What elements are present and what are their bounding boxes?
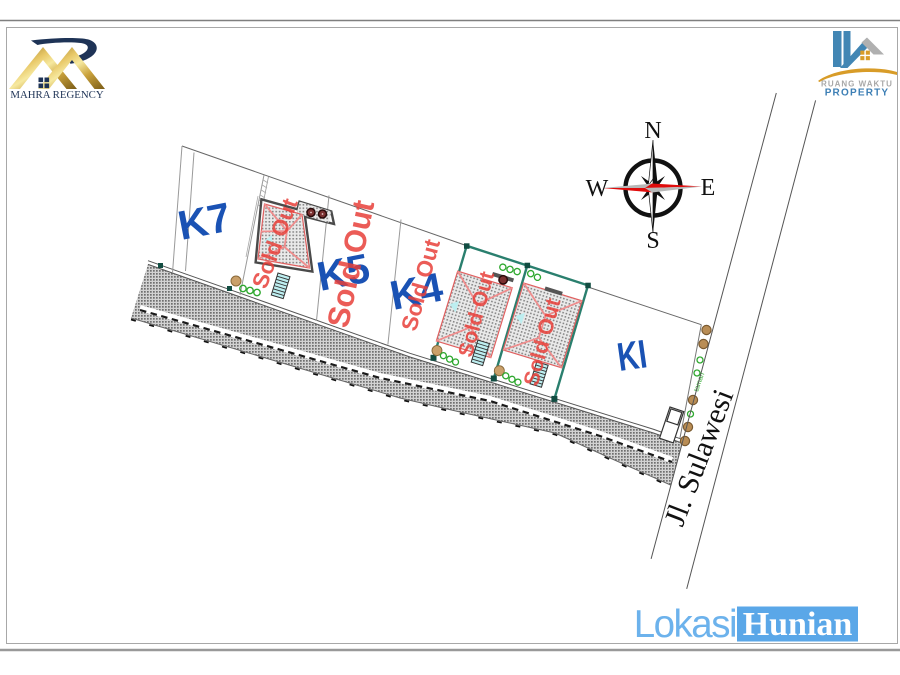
svg-text:Lokasi: Lokasi xyxy=(634,603,736,646)
svg-text:W: W xyxy=(586,176,609,202)
svg-text:S: S xyxy=(646,228,659,254)
svg-text:KI: KI xyxy=(615,332,650,380)
svg-text:MAHRA REGENCY: MAHRA REGENCY xyxy=(10,89,103,101)
svg-text:PROPERTY: PROPERTY xyxy=(825,88,890,99)
svg-text:E: E xyxy=(701,175,716,201)
svg-text:K7: K7 xyxy=(174,194,234,249)
svg-text:N: N xyxy=(644,118,661,144)
svg-text:Hunian: Hunian xyxy=(743,606,853,643)
